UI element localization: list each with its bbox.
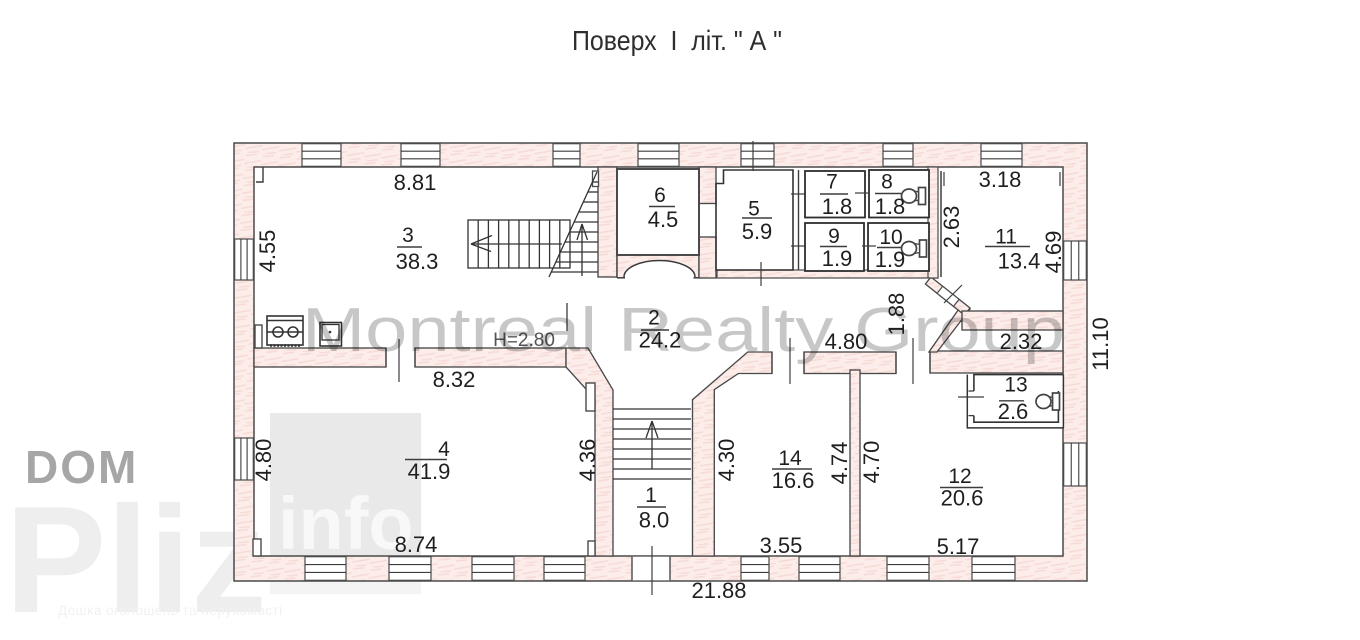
svg-text:8.0: 8.0	[639, 508, 670, 533]
svg-text:41.9: 41.9	[408, 459, 451, 484]
svg-text:14: 14	[778, 447, 802, 470]
svg-text:5.9: 5.9	[742, 219, 773, 244]
svg-text:4.69: 4.69	[1041, 231, 1066, 274]
svg-text:3.18: 3.18	[979, 167, 1022, 192]
svg-text:4.36: 4.36	[575, 439, 600, 482]
svg-text:13.4: 13.4	[998, 249, 1041, 274]
svg-text:8.81: 8.81	[394, 170, 437, 195]
svg-text:4.74: 4.74	[827, 442, 852, 485]
svg-text:8.74: 8.74	[395, 532, 438, 557]
svg-text:9: 9	[828, 225, 840, 248]
svg-text:5.17: 5.17	[937, 534, 980, 559]
svg-text:4.55: 4.55	[255, 230, 280, 273]
svg-text:4.80: 4.80	[251, 439, 276, 482]
svg-text:Поверх І літ. " А ": Поверх І літ. " А "	[572, 25, 782, 56]
svg-text:10: 10	[879, 226, 902, 249]
svg-text:13: 13	[1004, 374, 1027, 397]
svg-text:1.9: 1.9	[875, 247, 906, 272]
svg-text:1: 1	[645, 484, 657, 507]
svg-text:38.3: 38.3	[396, 249, 439, 274]
svg-text:1.8: 1.8	[822, 194, 853, 219]
svg-text:info: info	[278, 482, 414, 565]
svg-text:21.88: 21.88	[691, 578, 746, 603]
svg-text:11: 11	[995, 226, 1017, 249]
svg-text:2.6: 2.6	[998, 399, 1029, 424]
svg-text:6: 6	[654, 184, 666, 207]
svg-text:3.55: 3.55	[760, 533, 803, 558]
svg-text:1.9: 1.9	[822, 246, 853, 271]
svg-text:16.6: 16.6	[772, 468, 815, 493]
svg-text:8.32: 8.32	[433, 367, 476, 392]
svg-text:3: 3	[402, 224, 414, 247]
svg-text:11.10: 11.10	[1088, 317, 1113, 370]
svg-text:1.8: 1.8	[875, 194, 906, 219]
svg-text:Montreal Realty Group: Montreal Realty Group	[302, 296, 1065, 365]
svg-text:Дошка оголошень та нерухомості: Дошка оголошень та нерухомості	[58, 603, 283, 618]
svg-text:20.6: 20.6	[941, 486, 984, 511]
svg-text:2.63: 2.63	[939, 206, 964, 249]
svg-text:4.70: 4.70	[859, 441, 884, 484]
svg-text:5: 5	[748, 198, 760, 221]
svg-text:4.5: 4.5	[648, 207, 679, 232]
svg-text:4: 4	[438, 438, 450, 461]
svg-text:4.30: 4.30	[714, 439, 739, 482]
svg-text:7: 7	[826, 171, 838, 194]
svg-text:8: 8	[881, 171, 893, 194]
